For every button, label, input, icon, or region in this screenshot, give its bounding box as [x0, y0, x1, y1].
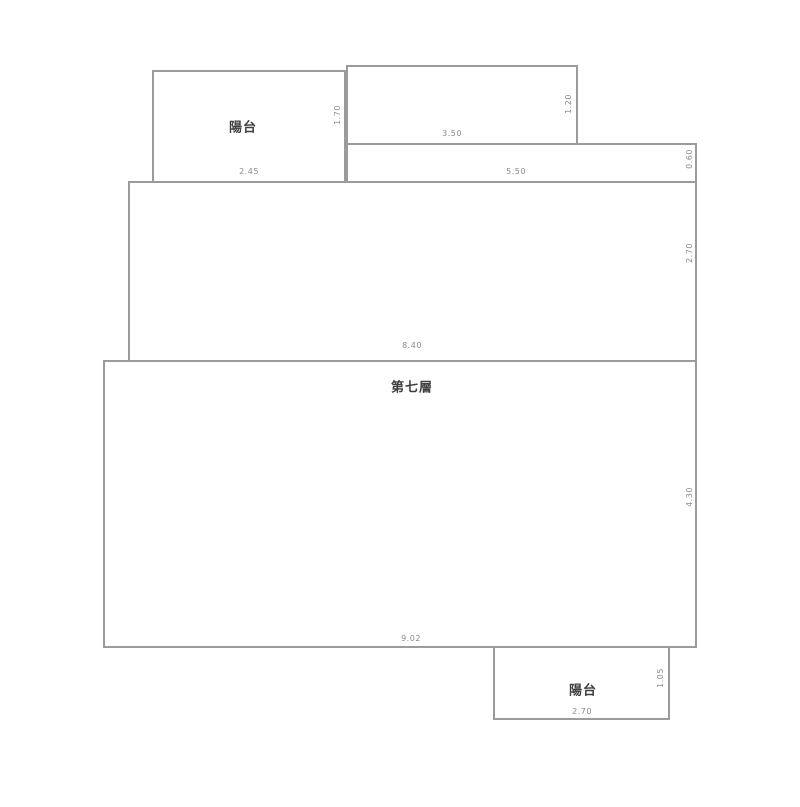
dim-lower-body-height: 4.30: [686, 487, 694, 507]
dim-upper-body-height: 2.70: [686, 243, 694, 263]
dim-strip-height: 0.60: [686, 149, 694, 169]
dim-strip-width: 5.50: [506, 168, 526, 176]
dim-balcony-top-height: 1.70: [334, 105, 342, 125]
top-right-room-outline: [346, 65, 578, 145]
dim-top-right-height: 1.20: [565, 94, 573, 114]
upper-body-outline: [128, 181, 697, 362]
dim-balcony-bottom-height: 1.05: [657, 668, 665, 688]
dim-upper-body-width: 8.40: [402, 342, 422, 350]
upper-strip-outline: [346, 143, 697, 183]
balcony-bottom-label: 陽台: [569, 680, 597, 699]
dim-balcony-top-width: 2.45: [239, 168, 259, 176]
dim-top-right-width: 3.50: [442, 130, 462, 138]
balcony-top-label: 陽台: [229, 117, 257, 136]
floor-label: 第七層: [391, 377, 433, 396]
lower-body-outline: [103, 360, 697, 648]
dim-lower-body-width: 9.02: [401, 635, 421, 643]
floor-plan-canvas: 陽台 第七層 陽台 2.45 3.50 5.50 8.40 9.02 2.70 …: [0, 0, 800, 807]
dim-balcony-bottom-width: 2.70: [572, 708, 592, 716]
